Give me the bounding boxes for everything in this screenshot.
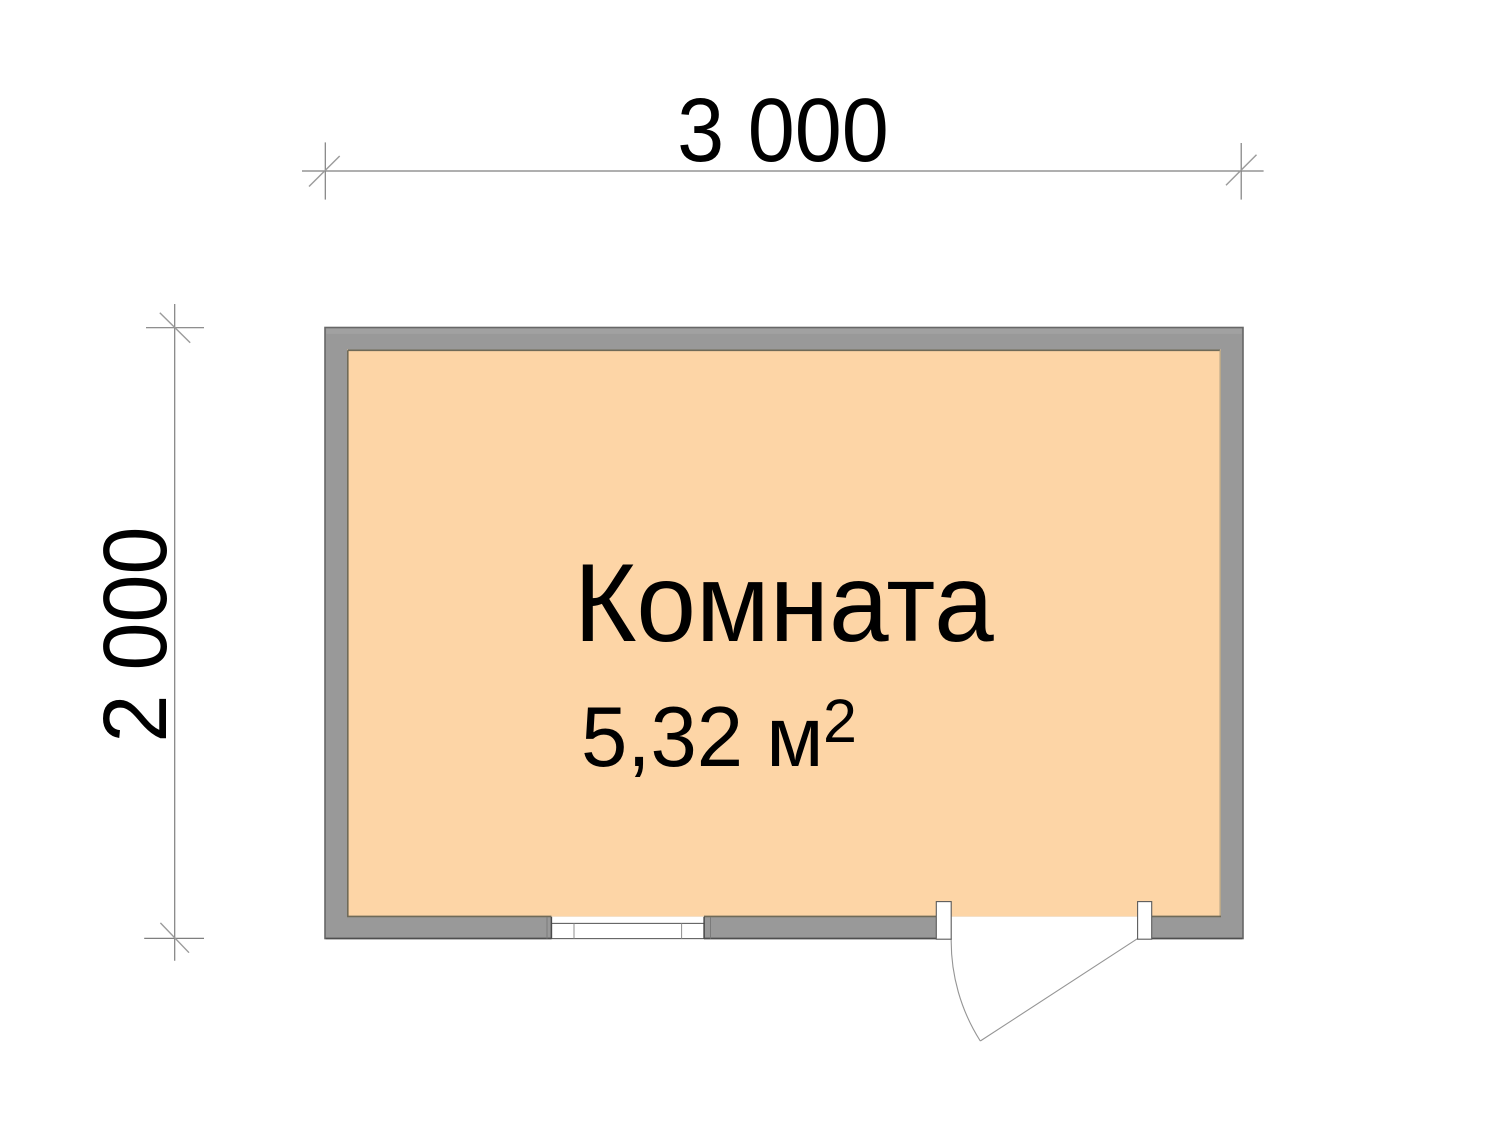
svg-text:2: 2 [823,687,857,755]
svg-text:Комната: Комната [574,542,994,666]
svg-text:3 000: 3 000 [677,80,889,181]
svg-text:5,32 м: 5,32 м [581,689,824,784]
svg-text:2 000: 2 000 [84,526,185,742]
